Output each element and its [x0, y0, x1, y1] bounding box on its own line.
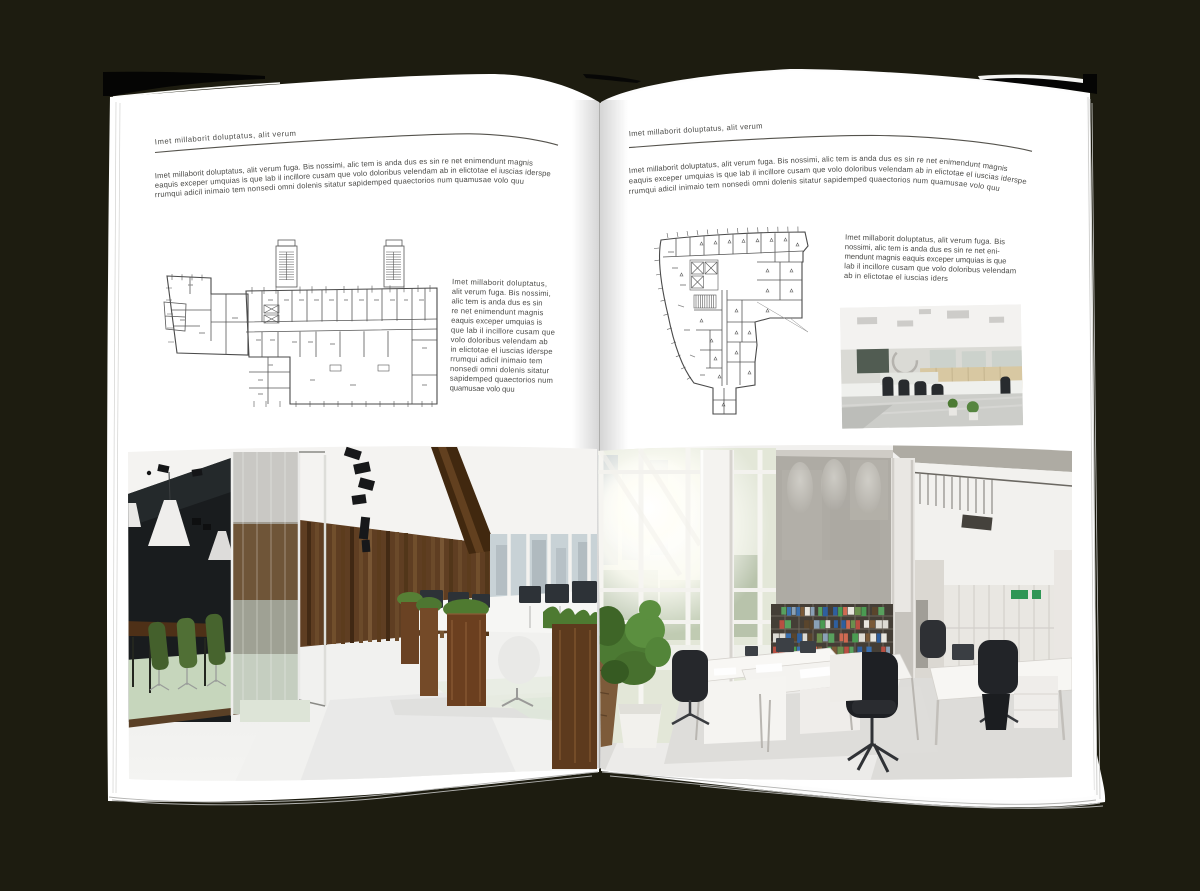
svg-text:quamusae volo quu: quamusae volo quu	[450, 383, 515, 393]
